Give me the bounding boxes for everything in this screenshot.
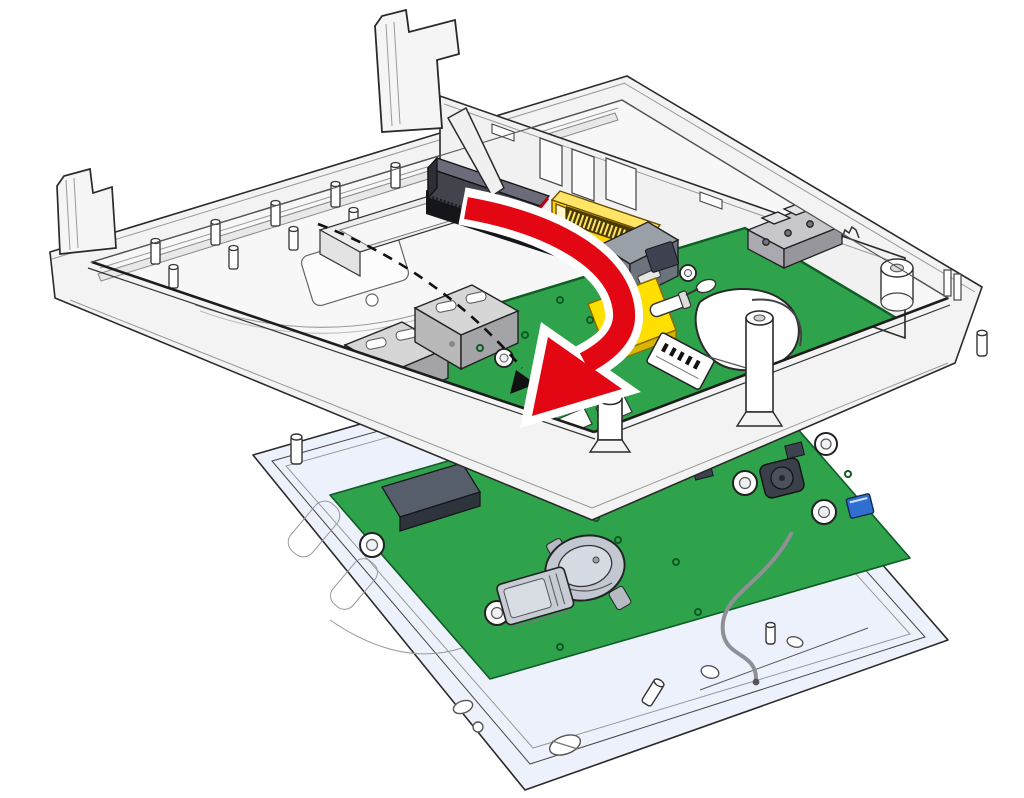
assembly-illustration [0,0,1024,798]
antenna-cable-tip [753,679,760,686]
housing-clip-small [57,169,116,254]
assembly-diagram [0,0,1024,798]
